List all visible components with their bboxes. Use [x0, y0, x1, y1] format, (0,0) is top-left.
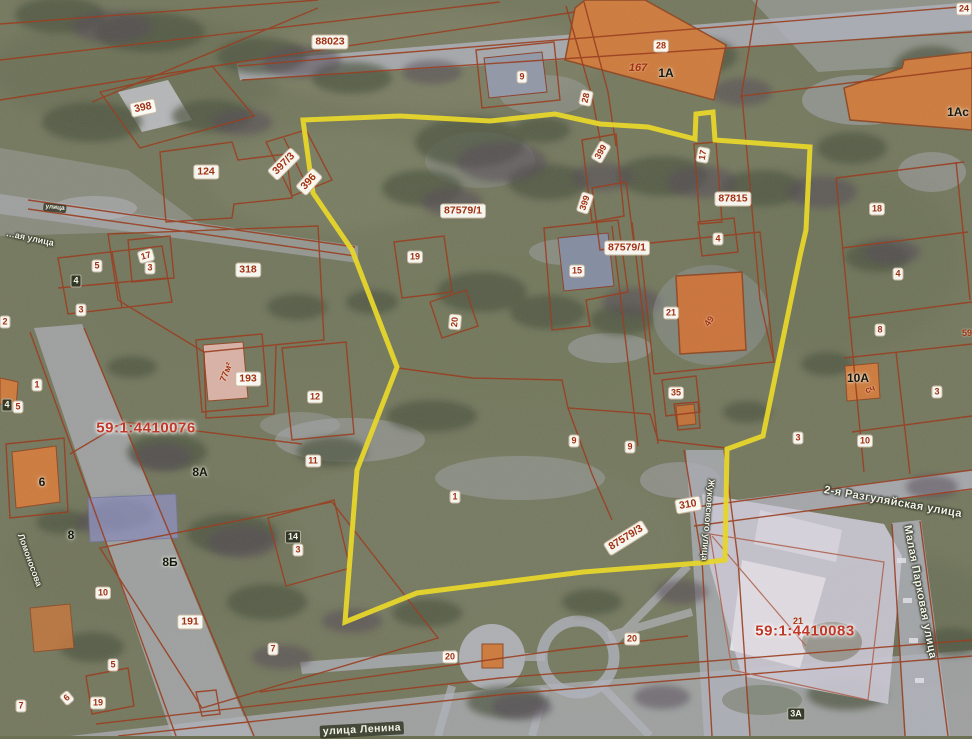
- cadastral-quarter-label: 59:1:4410076: [96, 420, 195, 437]
- cadastral-map-view[interactable]: 880239281671А241Ас398124397/339628399399…: [0, 0, 972, 736]
- parcel-number-label: 8: [68, 528, 75, 542]
- parcel-number-label: 5: [107, 659, 118, 672]
- parcel-number-label: 24: [956, 3, 972, 16]
- parcel-number-label: 11: [305, 455, 321, 468]
- parcel-number-label: 1Ас: [947, 105, 969, 119]
- parcel-number-label: 77м²: [218, 361, 235, 383]
- parcel-number-label: 3: [144, 262, 155, 275]
- street-name-label: улица Ленина: [320, 721, 405, 738]
- cadastral-zone-label: 88023: [311, 35, 348, 50]
- parcel-number-label: 3А: [787, 708, 805, 721]
- parcel-number-label: 3: [292, 544, 303, 557]
- parcel-number-label: 10: [857, 435, 873, 448]
- cadastral-zone-label: 87579/1: [604, 241, 650, 256]
- parcel-number-label: 19: [90, 697, 106, 710]
- parcel-number-label: 9: [568, 435, 579, 448]
- parcel-number-label: 12: [307, 391, 323, 404]
- cadastral-zone-label: 310: [674, 495, 702, 514]
- parcel-number-label: 1: [449, 491, 460, 504]
- parcel-number-label: 20: [448, 313, 462, 330]
- street-name-label: 2-я Разгуляйская улица: [823, 484, 963, 520]
- street-name-label: Жуковского улица: [699, 479, 716, 561]
- cadastral-zone-label: 87815: [714, 192, 751, 207]
- street-name-label: …ая улица: [5, 228, 55, 248]
- parcel-number-label: 19: [407, 251, 423, 264]
- parcel-number-label: 49: [702, 314, 716, 328]
- parcel-number-label: 399: [590, 140, 612, 165]
- cadastral-zone-label: 87579/3: [603, 519, 650, 556]
- parcel-number-label: 8: [874, 324, 885, 337]
- parcel-number-label: 3: [931, 386, 942, 399]
- parcel-number-label: 7: [267, 643, 278, 656]
- parcel-number-label: сч: [864, 383, 877, 396]
- parcel-number-label: 10А: [847, 371, 869, 385]
- parcel-number-label: 10: [95, 587, 111, 600]
- cadastral-zone-label: 318: [235, 263, 261, 278]
- cadastral-zone-label: 398: [129, 98, 157, 118]
- map-labels-layer: 880239281671А241Ас398124397/339628399399…: [0, 0, 972, 736]
- parcel-number-label: 4: [1, 399, 12, 412]
- parcel-number-label: 5: [12, 401, 23, 414]
- street-name-label: Ломоносова: [16, 532, 44, 588]
- cadastral-zone-label: 191: [177, 615, 203, 630]
- cadastral-zone-label: 87579/1: [440, 204, 486, 219]
- parcel-number-label: 8Б: [162, 555, 177, 569]
- parcel-number-label: 17: [695, 146, 711, 164]
- parcel-number-label: 4: [892, 268, 903, 281]
- parcel-number-label: 21: [663, 307, 679, 320]
- parcel-number-label: 59: [962, 328, 972, 338]
- parcel-number-label: 14: [285, 531, 301, 544]
- parcel-number-label: 399: [576, 191, 595, 215]
- parcel-number-label: 3: [792, 432, 803, 445]
- cadastral-quarter-label: 59:1:4410083: [755, 623, 854, 640]
- parcel-number-label: 1: [31, 379, 42, 392]
- cadastral-zone-label: 124: [193, 165, 219, 180]
- parcel-number-label: 5: [91, 260, 102, 273]
- parcel-number-label: 3: [75, 304, 86, 317]
- parcel-number-label: 4: [712, 233, 723, 246]
- parcel-number-label: 6: [39, 475, 46, 489]
- parcel-number-label: 20: [442, 651, 458, 664]
- parcel-number-label: 15: [569, 265, 585, 278]
- parcel-number-label: 9: [516, 71, 527, 84]
- parcel-number-label: 2: [0, 316, 11, 329]
- parcel-number-label: 7: [15, 700, 26, 713]
- parcel-number-label: 4: [70, 275, 81, 288]
- parcel-number-label: 28: [653, 40, 669, 53]
- parcel-number-label: 18: [869, 203, 885, 216]
- parcel-number-label: 8А: [192, 465, 207, 479]
- parcel-number-label: 35: [668, 387, 684, 400]
- cadastral-zone-label: 193: [235, 372, 261, 387]
- parcel-number-label: 6: [59, 689, 76, 706]
- street-name-label: улица: [43, 203, 67, 213]
- parcel-number-label: 1А: [658, 66, 673, 80]
- street-name-label: Малая Парковая улица: [901, 524, 939, 660]
- parcel-number-label: 9: [624, 441, 635, 454]
- cadastral-zone-label: 397/3: [267, 147, 302, 182]
- cadastral-zone-label: 396: [295, 167, 323, 196]
- parcel-number-label: 28: [578, 89, 594, 107]
- parcel-number-label: 20: [624, 633, 640, 646]
- parcel-number-label: 167: [629, 62, 647, 74]
